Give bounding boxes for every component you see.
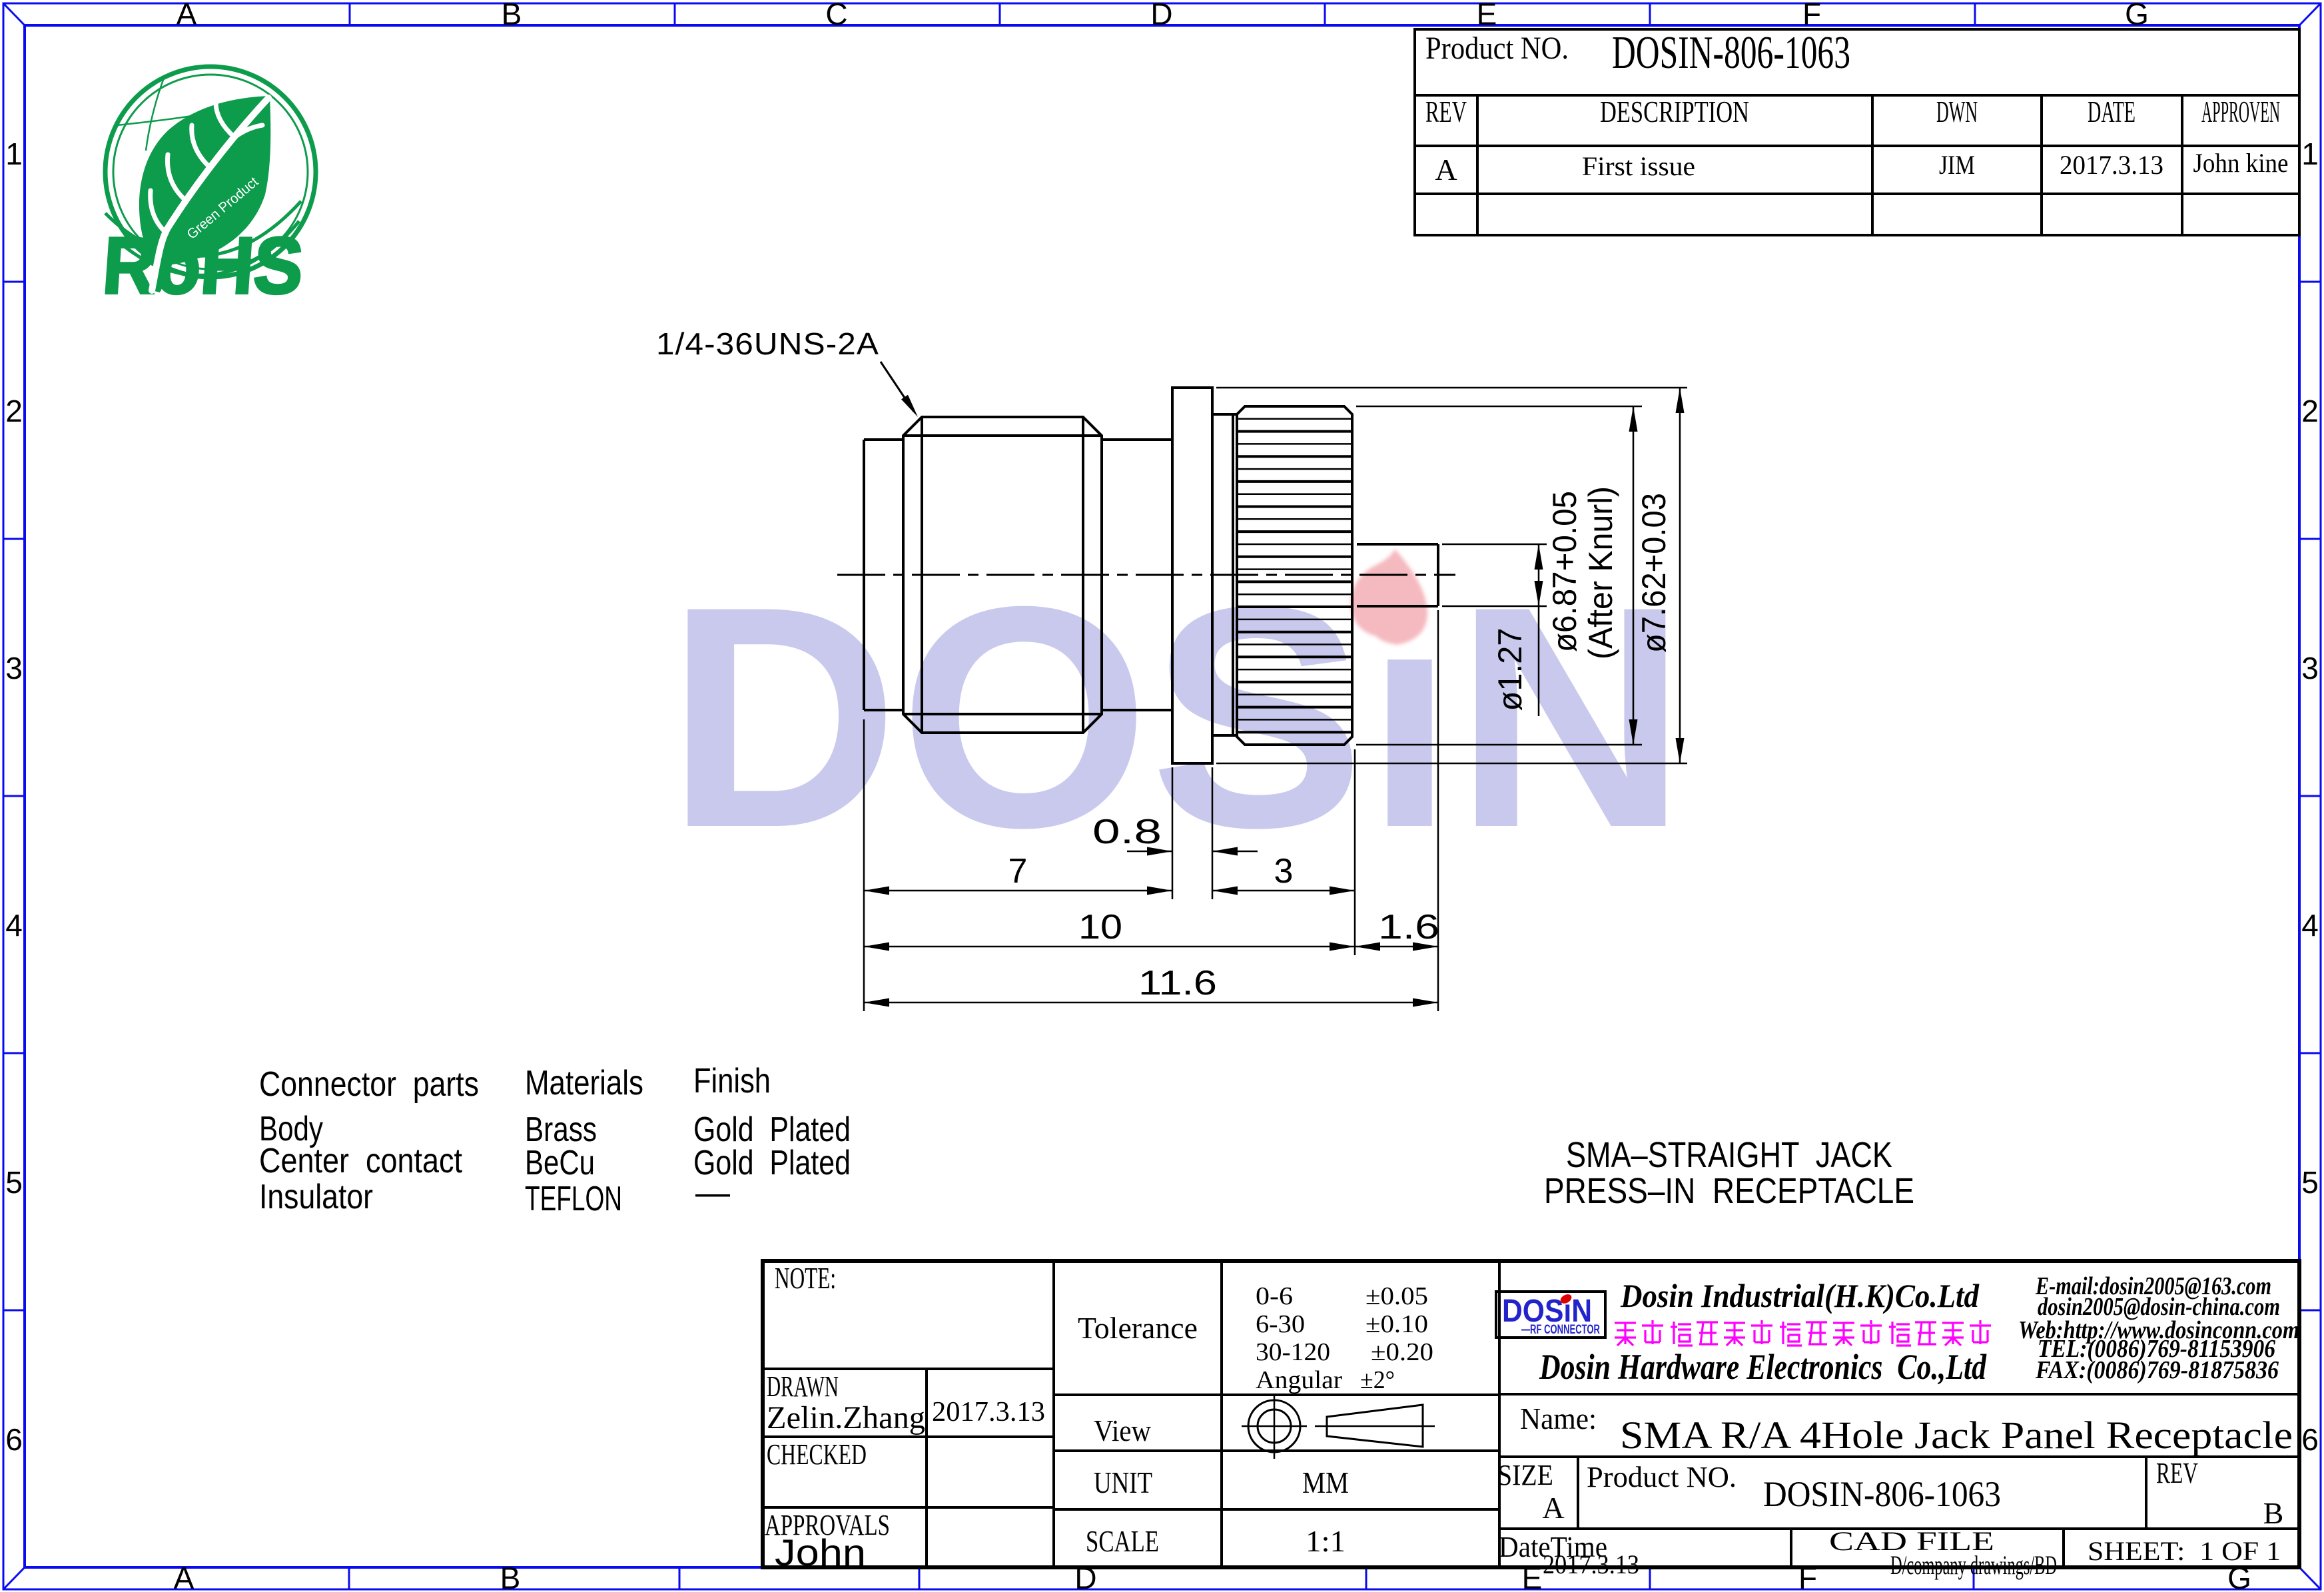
svg-text:2017.3.13: 2017.3.13: [2060, 150, 2163, 180]
svg-text:John: John: [775, 1531, 866, 1573]
svg-text:View: View: [1094, 1413, 1152, 1447]
svg-text:NOTE:: NOTE:: [775, 1261, 836, 1295]
svg-text:BeCu: BeCu: [525, 1144, 595, 1182]
svg-text:D/company drawings/BD: D/company drawings/BD: [1890, 1550, 2057, 1580]
svg-text:Insulator: Insulator: [259, 1178, 373, 1216]
svg-text:11.6: 11.6: [1138, 964, 1217, 1002]
svg-text:2: 2: [2301, 394, 2319, 428]
svg-text:Product NO.: Product NO.: [1425, 31, 1569, 66]
svg-text:Name:: Name:: [1520, 1401, 1597, 1435]
svg-text:B: B: [502, 0, 522, 31]
svg-text:1.6: 1.6: [1378, 908, 1439, 947]
svg-text:SCALE: SCALE: [1086, 1524, 1159, 1558]
svg-text:Zelin.Zhang: Zelin.Zhang: [767, 1400, 925, 1435]
svg-text:DWN: DWN: [1936, 95, 1978, 129]
svg-text:ø1.27: ø1.27: [1491, 628, 1529, 711]
svg-text:±0.05: ±0.05: [1365, 1282, 1428, 1310]
svg-text:6: 6: [2301, 1422, 2319, 1457]
svg-text:0.8: 0.8: [1092, 813, 1162, 851]
svg-text:1/4-36UNS-2A: 1/4-36UNS-2A: [656, 326, 879, 361]
svg-text:1:1: 1:1: [1306, 1524, 1346, 1558]
svg-text:5: 5: [2301, 1165, 2319, 1200]
svg-text:D: D: [1150, 0, 1172, 31]
svg-text:3: 3: [1274, 852, 1294, 891]
svg-text:ø7.62+0.03: ø7.62+0.03: [1635, 493, 1673, 653]
svg-text:MM: MM: [1302, 1465, 1349, 1499]
svg-text:REV: REV: [1425, 95, 1467, 129]
svg-text:±0.20: ±0.20: [1371, 1338, 1433, 1366]
svg-text:6: 6: [5, 1422, 23, 1457]
svg-text:Product NO.: Product NO.: [1587, 1461, 1737, 1493]
svg-text:1: 1: [5, 137, 23, 171]
svg-text:A: A: [1542, 1491, 1564, 1525]
svg-text:UNIT: UNIT: [1094, 1465, 1152, 1499]
svg-text:G: G: [2125, 0, 2149, 31]
svg-text:(After Knurl): (After Knurl): [1582, 486, 1619, 659]
svg-text:PRESS–IN RECEPTACLE: PRESS–IN RECEPTACLE: [1544, 1171, 1914, 1211]
svg-text:A: A: [177, 0, 197, 31]
svg-text:Angular: Angular: [1256, 1366, 1342, 1394]
svg-text:F: F: [1802, 0, 1821, 31]
svg-text:SMA R/A 4Hole Jack Panel Recep: SMA R/A 4Hole Jack Panel Receptacle: [1620, 1413, 2293, 1457]
svg-text:5: 5: [5, 1165, 23, 1200]
svg-text:SHEET: 1 OF 1: SHEET: 1 OF 1: [2088, 1536, 2281, 1566]
svg-text:4: 4: [5, 908, 23, 943]
svg-text:C: C: [825, 0, 847, 31]
svg-text:4: 4: [2301, 908, 2319, 943]
svg-text:30-120: 30-120: [1256, 1338, 1330, 1366]
svg-text:SMA–STRAIGHT JACK: SMA–STRAIGHT JACK: [1566, 1135, 1892, 1175]
svg-text:2017.3.13: 2017.3.13: [932, 1397, 1045, 1427]
svg-text:E: E: [1477, 0, 1497, 31]
svg-text:TEFLON: TEFLON: [525, 1180, 622, 1218]
svg-text:6-30: 6-30: [1256, 1310, 1305, 1338]
svg-text:Finish: Finish: [693, 1062, 771, 1100]
svg-text:7: 7: [1008, 852, 1028, 891]
svg-text:DRAWN: DRAWN: [767, 1370, 839, 1403]
svg-text:JIM: JIM: [1939, 150, 1975, 180]
svg-text:B: B: [2263, 1496, 2284, 1530]
svg-text:1: 1: [2301, 137, 2319, 171]
svg-text:±0.10: ±0.10: [1365, 1310, 1428, 1338]
svg-text:Center contact: Center contact: [259, 1142, 462, 1180]
svg-text:FAX:(0086)769-81875836: FAX:(0086)769-81875836: [2035, 1356, 2279, 1384]
svg-text:APPROVEN: APPROVEN: [2201, 95, 2280, 129]
svg-text:John kine: John kine: [2193, 148, 2289, 178]
svg-text:±2°: ±2°: [1360, 1366, 1395, 1394]
svg-text:0-6: 0-6: [1256, 1282, 1293, 1310]
svg-text:CHECKED: CHECKED: [767, 1438, 867, 1471]
svg-text:—: —: [695, 1174, 730, 1212]
svg-text:DOSIN-806-1063: DOSIN-806-1063: [1612, 27, 1850, 79]
svg-text:A: A: [174, 1561, 194, 1592]
svg-text:DOSıN: DOSıN: [666, 542, 1687, 893]
svg-text:Materials: Materials: [525, 1064, 643, 1102]
svg-text:—RF CONNECTOR: —RF CONNECTOR: [1521, 1323, 1600, 1337]
svg-text:First issue: First issue: [1582, 151, 1695, 181]
svg-text:Dosin Industrial(H.K)Co.Ltd: Dosin Industrial(H.K)Co.Ltd: [1620, 1277, 1980, 1314]
svg-text:SIZE: SIZE: [1497, 1459, 1553, 1491]
svg-text:REV: REV: [2156, 1457, 2198, 1489]
svg-text:DATE: DATE: [2088, 95, 2135, 129]
svg-text:DESCRIPTION: DESCRIPTION: [1600, 95, 1749, 129]
svg-text:3: 3: [2301, 651, 2319, 685]
svg-text:2: 2: [5, 394, 23, 428]
svg-text:3: 3: [5, 651, 23, 685]
svg-text:Dosin Hardware Electronics Co: Dosin Hardware Electronics Co.,Ltd: [1539, 1347, 1987, 1387]
svg-text:2017.3.13: 2017.3.13: [1543, 1549, 1639, 1579]
svg-text:Tolerance: Tolerance: [1078, 1311, 1198, 1345]
svg-text:Connector parts: Connector parts: [259, 1065, 479, 1104]
svg-text:DOSIN-806-1063: DOSIN-806-1063: [1763, 1474, 2001, 1514]
svg-text:RoHS: RoHS: [100, 221, 306, 310]
svg-text:B: B: [500, 1561, 521, 1592]
svg-text:10: 10: [1078, 908, 1122, 947]
svg-text:A: A: [1435, 153, 1457, 187]
svg-text:ø6.87+0.05: ø6.87+0.05: [1546, 491, 1583, 652]
